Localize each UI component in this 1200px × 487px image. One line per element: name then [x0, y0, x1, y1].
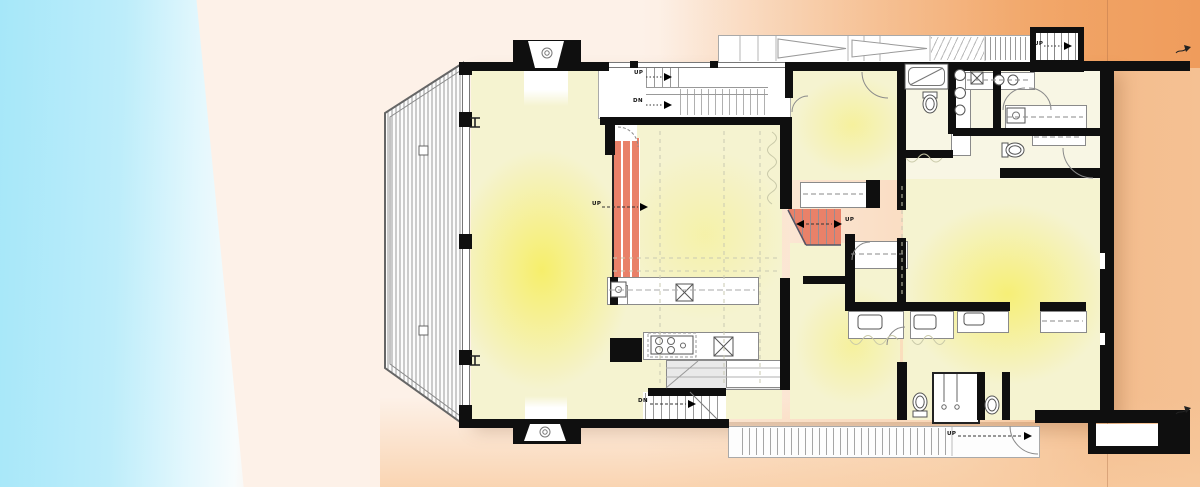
bathtub — [905, 64, 948, 89]
stair-label-up: UP — [845, 218, 854, 224]
vanity-sink — [858, 313, 984, 329]
kitchen-sink — [611, 108, 1025, 297]
appliance-x-box — [676, 72, 983, 356]
toilet — [985, 396, 999, 414]
shower-detail — [942, 374, 959, 409]
door-arc — [618, 72, 1093, 454]
stair-label-dn: DN — [638, 399, 648, 405]
plan-lineart — [0, 0, 1200, 487]
ibeam-column-icon — [470, 118, 480, 365]
walkway-ramp-2 — [852, 40, 927, 57]
toilet — [913, 393, 927, 417]
stair-label-up: UP — [592, 202, 601, 208]
up-arrow-icon — [640, 42, 1072, 440]
toilet — [1002, 143, 1024, 157]
lower-stair-rail — [690, 392, 717, 419]
scallop-decor — [768, 132, 946, 345]
pantry-lines — [666, 361, 780, 388]
stair-label-up: UP — [634, 71, 643, 77]
mid-stair-edge — [788, 210, 841, 245]
section-arrow-icon — [1176, 45, 1191, 414]
range-cooktop — [648, 333, 696, 357]
stair-label-up: UP — [1034, 42, 1043, 48]
stair-label-dn: DN — [633, 99, 643, 105]
walkway-ramp-1 — [778, 39, 846, 58]
toilet — [923, 92, 937, 113]
floor-plan-canvas: UP DN UP UP UP UP DN — [0, 0, 1200, 487]
stair-label-up: UP — [947, 432, 956, 438]
